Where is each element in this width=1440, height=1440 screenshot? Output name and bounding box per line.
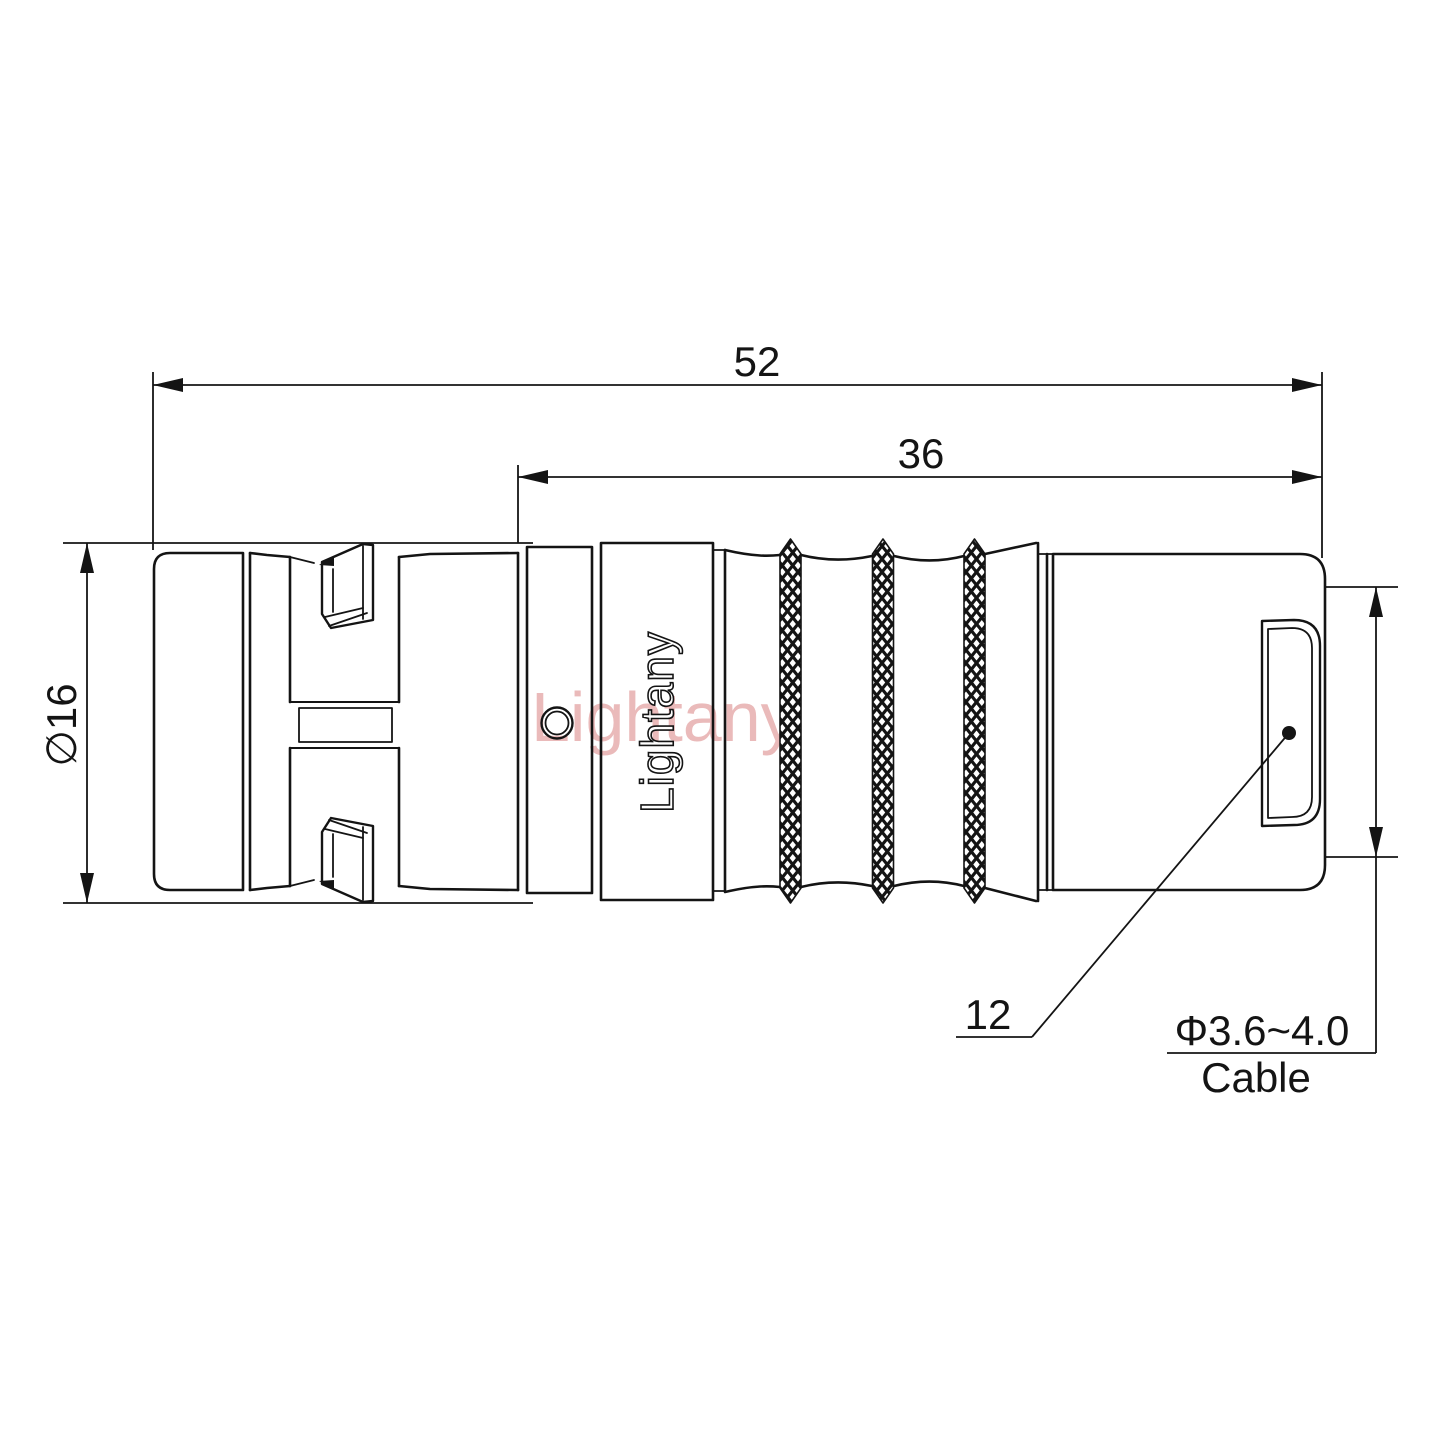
arrowhead-left: [153, 378, 183, 392]
knurled-grip: [725, 539, 1053, 903]
latch-tab-top: [319, 544, 373, 628]
cable-word: Cable: [1201, 1054, 1311, 1101]
dimension-body-length: 36: [518, 430, 1322, 543]
dimension-label-52: 52: [734, 338, 781, 385]
vent-hole-inner: [546, 712, 569, 735]
connector-line-drawing: 52 36 ∅16: [0, 0, 1440, 1440]
cable-entry-window: [1262, 620, 1320, 826]
drawing-canvas: Lightany 52 36: [0, 0, 1440, 1440]
dimension-rear-face: 12: [956, 587, 1398, 1053]
dimension-label-diameter16: ∅16: [38, 683, 85, 766]
latch-tab-bottom: [319, 818, 373, 902]
arrowhead-left: [518, 470, 548, 484]
cable-size-label: Φ3.6~4.0 Cable: [1167, 1007, 1376, 1101]
vent-collar: [527, 547, 592, 893]
latch-sleeve: [250, 544, 518, 902]
arrowhead-up: [80, 543, 94, 573]
dimension-shell-diameter: ∅16: [38, 543, 533, 903]
leader-line: [1032, 733, 1289, 1037]
arrowhead-down: [80, 873, 94, 903]
dimension-label-12: 12: [965, 991, 1012, 1038]
front-end-cap: [154, 553, 250, 890]
arrowhead-right: [1292, 378, 1322, 392]
arrowhead-right: [1292, 470, 1322, 484]
middle-slot: [290, 702, 399, 748]
knurl-band: [964, 539, 985, 903]
rear-sleeve: [1047, 554, 1325, 890]
arrowhead-down: [1369, 827, 1383, 857]
connector-body: [154, 539, 1325, 903]
leader-dot: [1282, 726, 1296, 740]
brand-engraving-text: Lightany: [631, 631, 683, 813]
knurl-band: [873, 539, 894, 903]
knurl-band: [780, 539, 801, 903]
cable-diameter-range: Φ3.6~4.0: [1175, 1007, 1350, 1054]
dimension-overall-length: 52: [153, 338, 1322, 558]
arrowhead-up: [1369, 587, 1383, 617]
dimension-label-36: 36: [898, 430, 945, 477]
